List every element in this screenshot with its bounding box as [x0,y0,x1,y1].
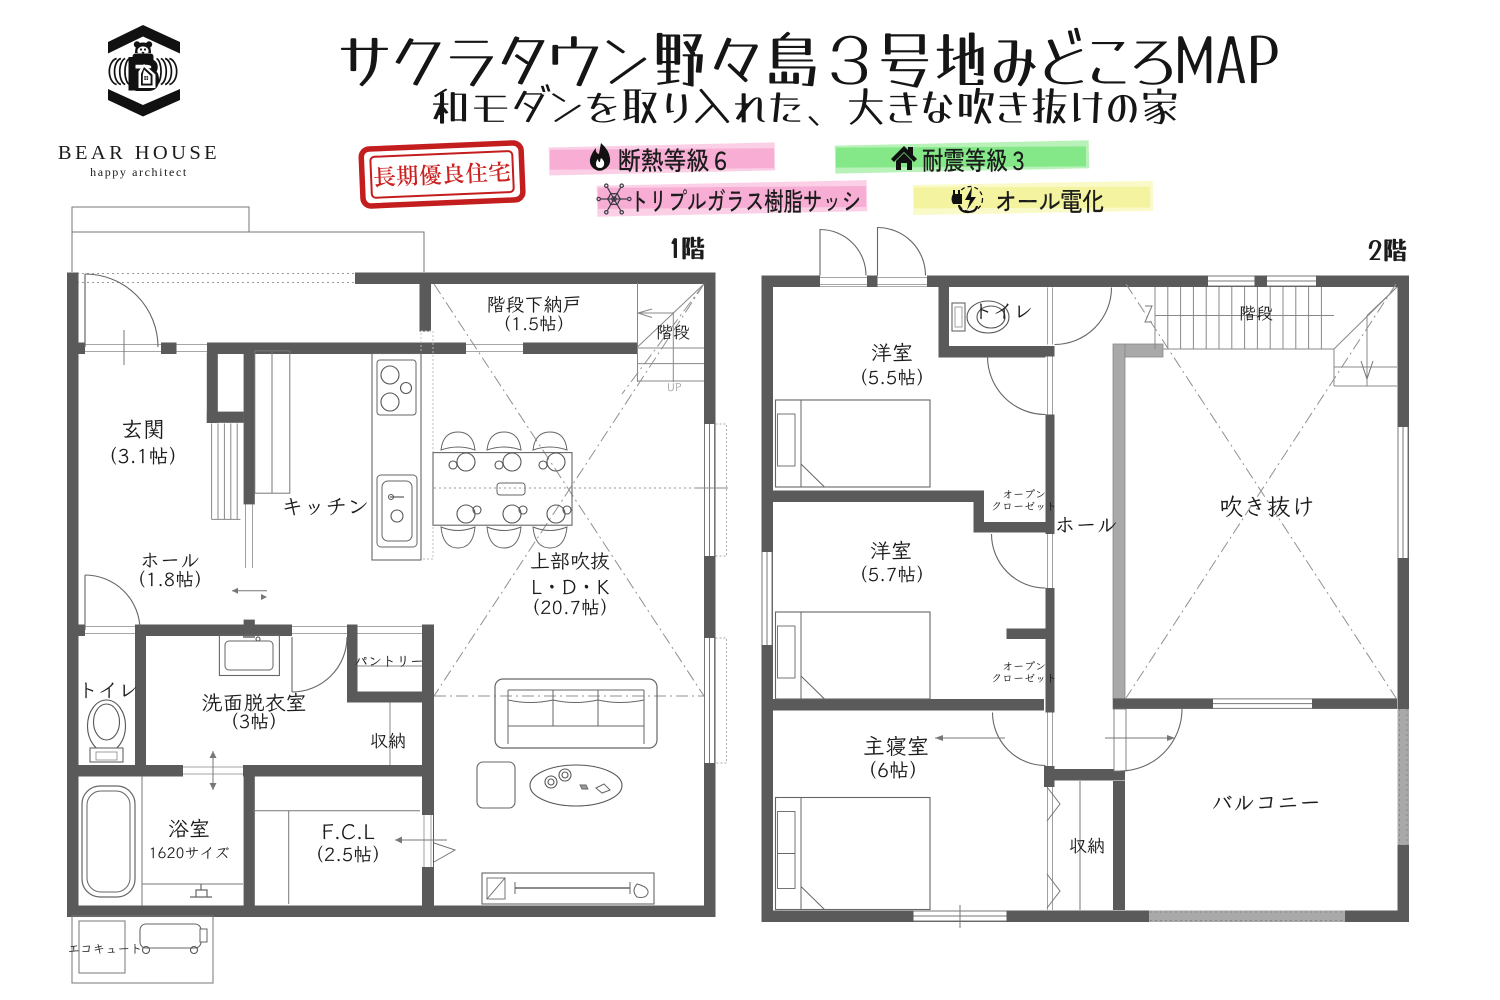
svg-text:happy architect: happy architect [90,165,188,179]
svg-text:BEAR HOUSE: BEAR HOUSE [58,142,220,164]
